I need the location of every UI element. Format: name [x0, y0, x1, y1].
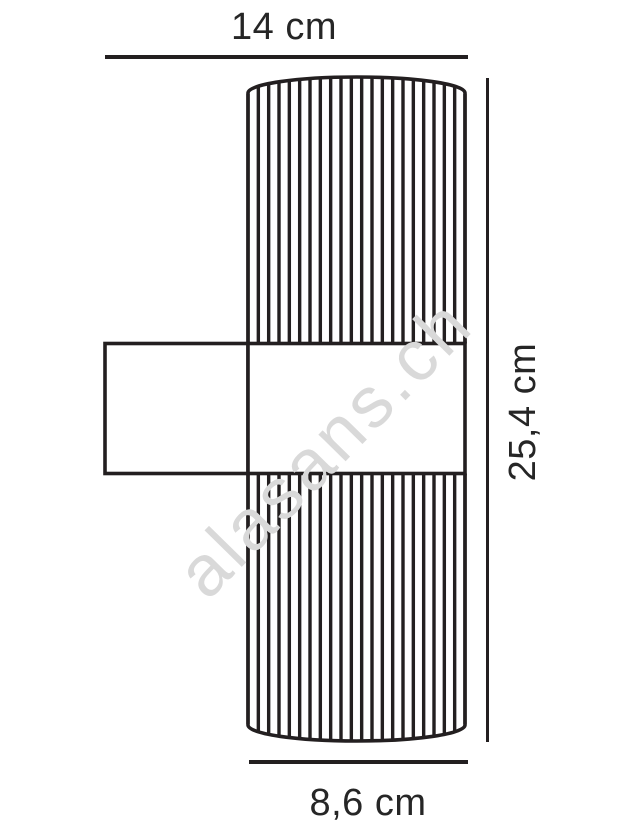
dimension-diagram: alasans.ch 14 cm 25,4 cm 8,6 cm	[0, 0, 641, 837]
lamp-drawing	[0, 0, 641, 837]
dimension-label-diameter: 8,6 cm	[309, 784, 426, 822]
dimension-label-width: 14 cm	[231, 8, 337, 46]
middle-band	[248, 344, 465, 474]
wall-bracket	[105, 344, 248, 474]
dimension-label-height: 25,4 cm	[504, 343, 542, 482]
